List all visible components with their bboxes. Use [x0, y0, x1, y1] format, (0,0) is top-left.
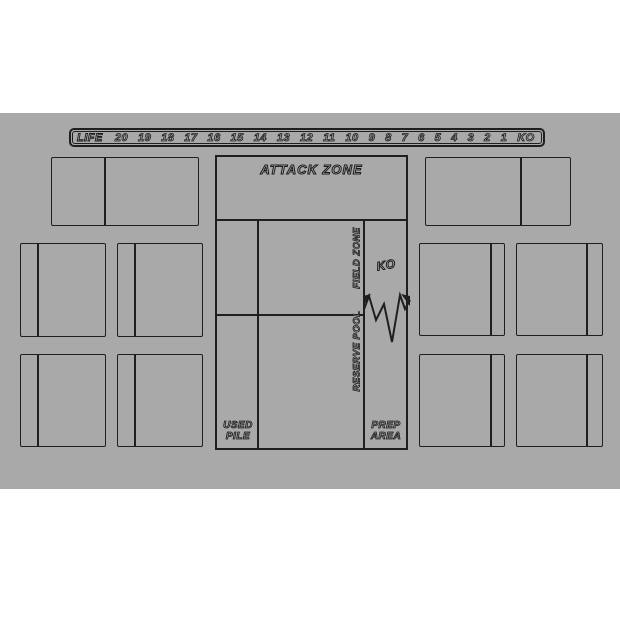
life-value[interactable]: 10 — [345, 132, 358, 144]
card-zone-left-top-1[interactable] — [20, 243, 106, 337]
field-zone[interactable] — [258, 220, 363, 314]
life-value[interactable]: 3 — [468, 132, 475, 144]
prep-area-label: PREP AREA — [371, 420, 401, 442]
playmat-page: LIFE 2019181716151413121110987654321KO — [0, 0, 620, 620]
card-zone-divider — [37, 355, 39, 446]
life-row: LIFE 2019181716151413121110987654321KO — [71, 130, 543, 145]
card-zone-top-right[interactable] — [425, 157, 571, 226]
card-zone-divider — [134, 244, 136, 336]
used-pile-label: USED PILE — [223, 420, 253, 442]
life-value[interactable]: KO — [517, 132, 535, 144]
card-zone-right-bottom-1[interactable] — [419, 354, 505, 447]
card-zone-divider — [586, 355, 588, 446]
life-value[interactable]: 16 — [207, 132, 220, 144]
card-zone-divider — [104, 158, 106, 225]
card-zone-divider — [490, 355, 492, 446]
used-pile-line1: USED — [223, 420, 253, 431]
life-value[interactable]: 6 — [418, 132, 425, 144]
ko-tear-icon — [363, 282, 411, 352]
reserve-pool-label: RESERVE POOL — [352, 311, 363, 392]
life-value[interactable]: 17 — [184, 132, 197, 144]
life-value[interactable]: 13 — [277, 132, 290, 144]
life-counter-bar: LIFE 2019181716151413121110987654321KO — [69, 128, 545, 147]
playmat-surface: LIFE 2019181716151413121110987654321KO — [0, 113, 620, 489]
life-value[interactable]: 7 — [402, 132, 409, 144]
card-zone-left-top-2[interactable] — [117, 243, 203, 337]
life-value[interactable]: 15 — [231, 132, 244, 144]
card-zone-top-left[interactable] — [51, 157, 199, 226]
card-zone-divider — [134, 355, 136, 446]
card-zone-divider — [586, 244, 588, 335]
prep-area-line2: AREA — [371, 431, 401, 442]
life-label: LIFE — [77, 132, 103, 144]
life-value[interactable]: 5 — [435, 132, 442, 144]
center-play-column: ATTACK ZONE FIELD ZONE RESERVE POOL KO U… — [215, 155, 408, 450]
life-value[interactable]: 2 — [484, 132, 491, 144]
life-value[interactable]: 8 — [385, 132, 392, 144]
reserve-pool-zone[interactable] — [258, 315, 363, 448]
life-value[interactable]: 1 — [501, 132, 508, 144]
card-zone-right-top-2[interactable] — [516, 243, 603, 336]
life-values: 2019181716151413121110987654321KO — [115, 132, 535, 144]
card-zone-divider — [520, 158, 522, 225]
life-value[interactable]: 4 — [451, 132, 458, 144]
used-pile-line2: PILE — [226, 431, 250, 442]
life-value[interactable]: 12 — [300, 132, 313, 144]
card-zone-right-bottom-2[interactable] — [516, 354, 603, 447]
prep-area-line1: PREP — [371, 420, 400, 431]
card-zone-right-top-1[interactable] — [419, 243, 505, 336]
field-zone-label: FIELD ZONE — [352, 227, 363, 288]
card-zone-left-bottom-1[interactable] — [20, 354, 106, 447]
life-value[interactable]: 11 — [323, 132, 335, 144]
card-zone-divider — [490, 244, 492, 335]
life-value[interactable]: 14 — [254, 132, 267, 144]
attack-zone-label: ATTACK ZONE — [217, 162, 406, 177]
life-value[interactable]: 18 — [161, 132, 174, 144]
card-zone-left-bottom-2[interactable] — [117, 354, 203, 447]
life-value[interactable]: 19 — [138, 132, 151, 144]
life-value[interactable]: 9 — [369, 132, 376, 144]
life-value[interactable]: 20 — [115, 132, 128, 144]
card-zone-divider — [37, 244, 39, 336]
